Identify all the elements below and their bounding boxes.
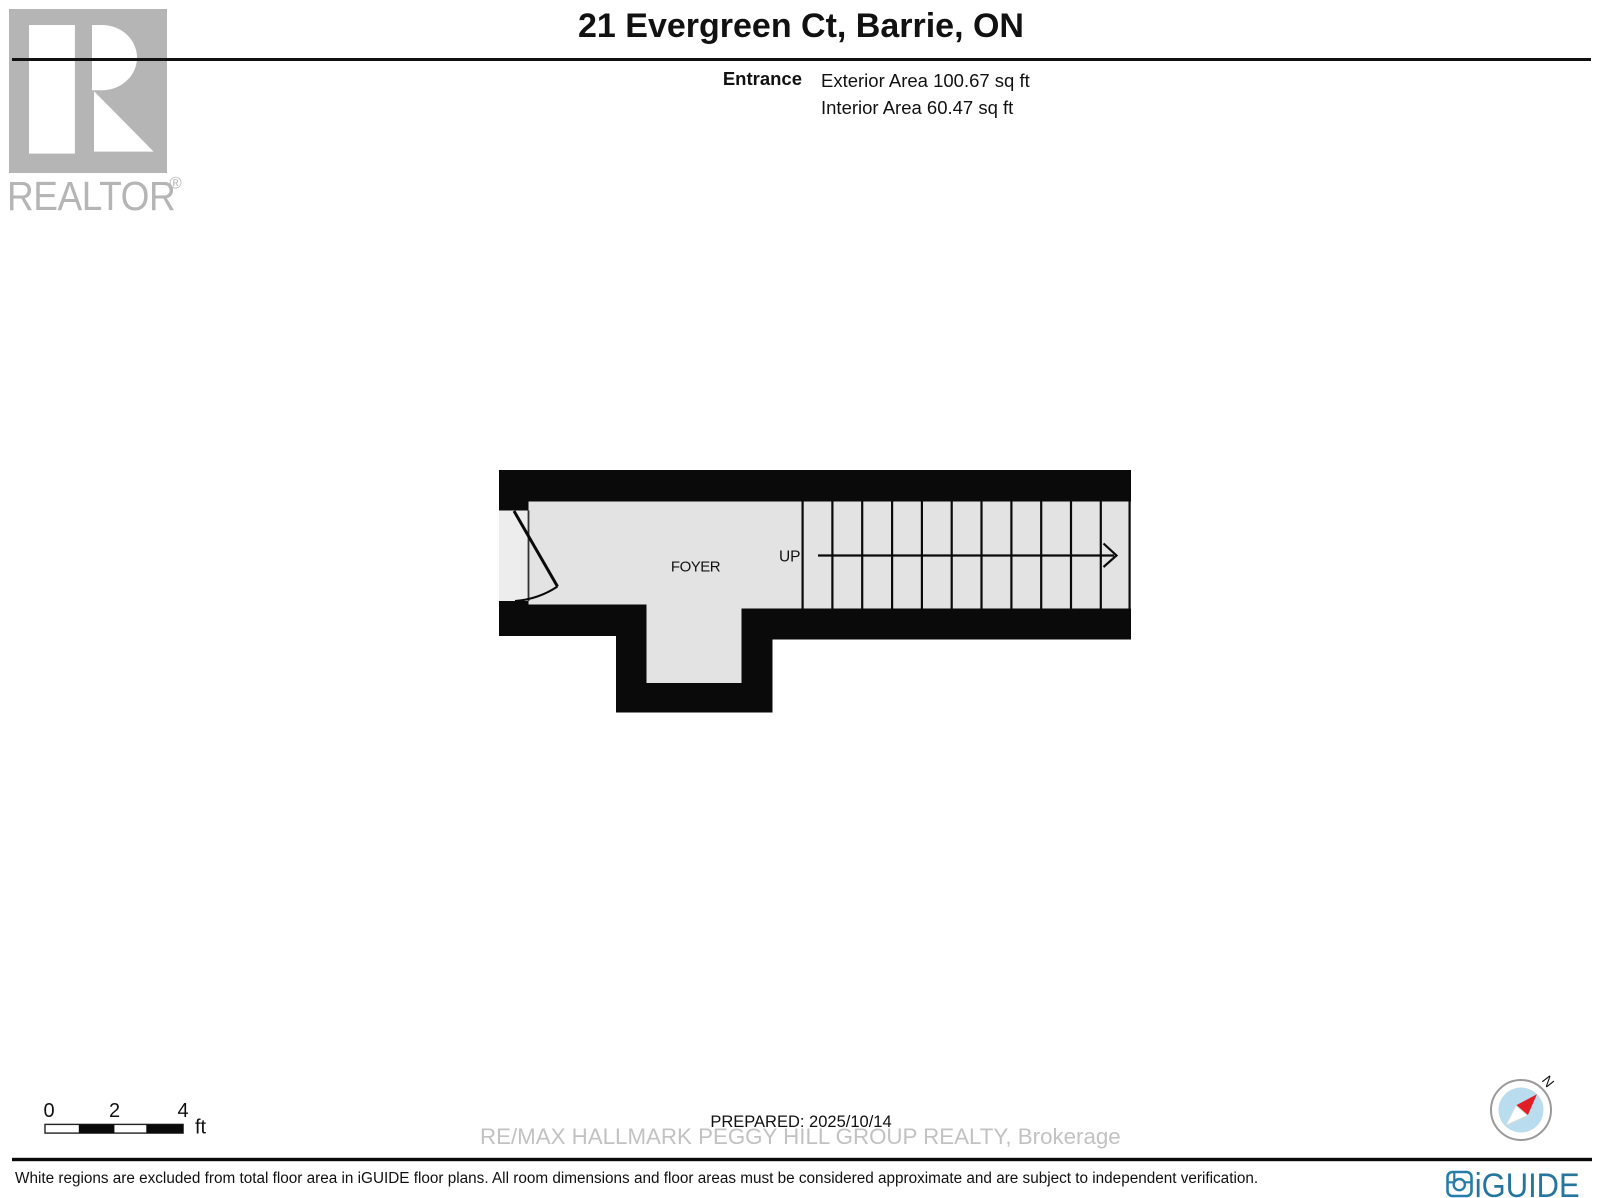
svg-text:FOYER: FOYER [671, 559, 721, 576]
svg-text:iGUIDE: iGUIDE [1475, 1167, 1580, 1198]
svg-text:UP: UP [779, 549, 801, 566]
